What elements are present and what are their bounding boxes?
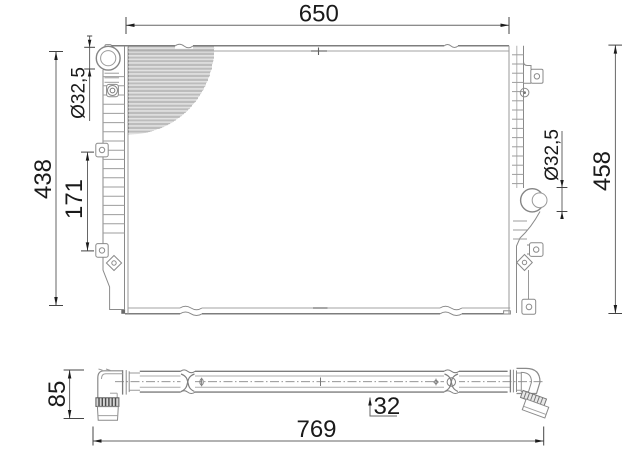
svg-text:85: 85 xyxy=(44,381,71,408)
svg-text:Ø32,5: Ø32,5 xyxy=(69,67,90,119)
svg-text:Ø32,5: Ø32,5 xyxy=(542,129,563,181)
svg-text:769: 769 xyxy=(296,416,336,443)
svg-text:458: 458 xyxy=(589,151,616,191)
svg-text:32: 32 xyxy=(374,393,401,420)
svg-text:171: 171 xyxy=(61,179,88,219)
svg-text:438: 438 xyxy=(30,159,57,199)
svg-text:650: 650 xyxy=(299,1,339,28)
